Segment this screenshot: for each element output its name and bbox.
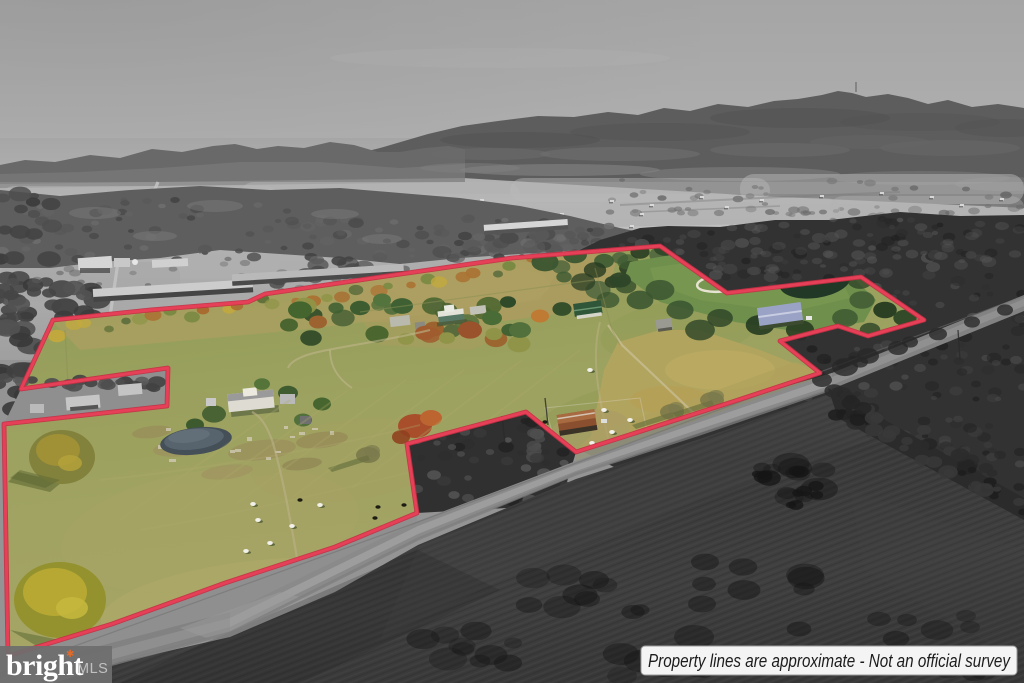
svg-text:Property lines are approximate: Property lines are approximate - Not an … bbox=[648, 651, 1011, 671]
svg-text:MLS: MLS bbox=[77, 661, 108, 677]
svg-text:✱: ✱ bbox=[66, 649, 74, 660]
